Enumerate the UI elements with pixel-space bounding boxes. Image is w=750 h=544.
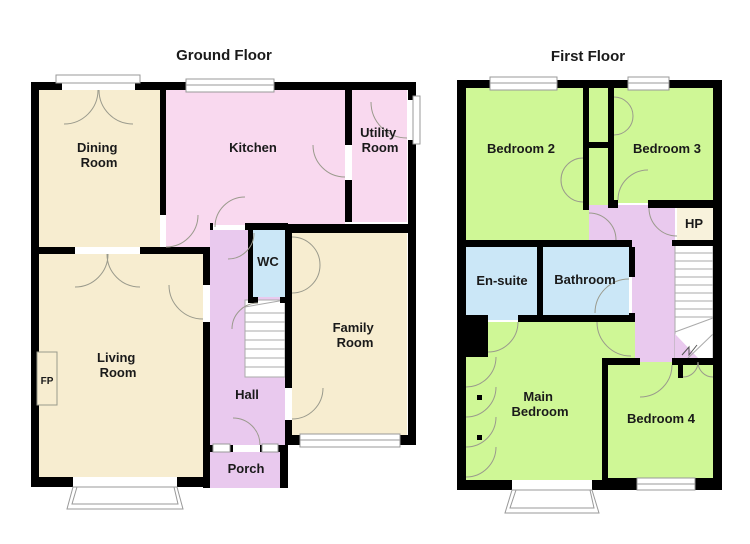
- floorplan-page: Ground Floor Dining Room Kitchen Utility…: [0, 0, 750, 544]
- porch-label: Porch: [228, 461, 265, 476]
- ensuite-label: En-suite: [476, 273, 527, 288]
- first-floor-plan: First Floor Bedroom 2 Bedroom 3 HP En-su…: [457, 48, 722, 513]
- porch-sidelight-right: [262, 444, 278, 452]
- wc-label: WC: [257, 254, 279, 269]
- dining-room-label: Dining Room: [77, 140, 121, 170]
- ground-stairs: [245, 300, 285, 377]
- hall-label: Hall: [235, 387, 259, 402]
- ground-floor-title: Ground Floor: [176, 47, 272, 64]
- first-stairs: [675, 245, 713, 360]
- utility-door-frame: [413, 96, 420, 144]
- family-room-label: Family Room: [333, 320, 378, 350]
- hp-label: HP: [685, 216, 703, 231]
- floorplan-canvas: Ground Floor Dining Room Kitchen Utility…: [0, 0, 750, 544]
- ground-floor-plan: Ground Floor Dining Room Kitchen Utility…: [31, 47, 420, 509]
- main-bedroom-bay-window: [505, 490, 599, 513]
- bedroom4-label: Bedroom 4: [627, 411, 696, 426]
- living-bay-opening: [73, 477, 177, 487]
- kitchen-label: Kitchen: [229, 140, 277, 155]
- front-door-opening: [233, 445, 260, 452]
- living-room-label: Living Room: [97, 350, 139, 380]
- fireplace-label: FP: [41, 376, 54, 387]
- landing-upper-area: [589, 205, 632, 240]
- porch-sidelight-left: [213, 444, 230, 452]
- bedroom2-label: Bedroom 2: [487, 141, 555, 156]
- main-bedroom-bay-opening: [512, 480, 592, 490]
- living-bay-window: [67, 487, 183, 509]
- bedroom3-label: Bedroom 3: [633, 141, 701, 156]
- landing-area: [632, 205, 675, 362]
- dining-patio-door-frame: [56, 75, 140, 83]
- utility-room-label: Utility Room: [360, 125, 400, 155]
- utility-room-area: [352, 90, 407, 222]
- first-floor-title: First Floor: [551, 48, 625, 65]
- bathroom-label: Bathroom: [554, 272, 615, 287]
